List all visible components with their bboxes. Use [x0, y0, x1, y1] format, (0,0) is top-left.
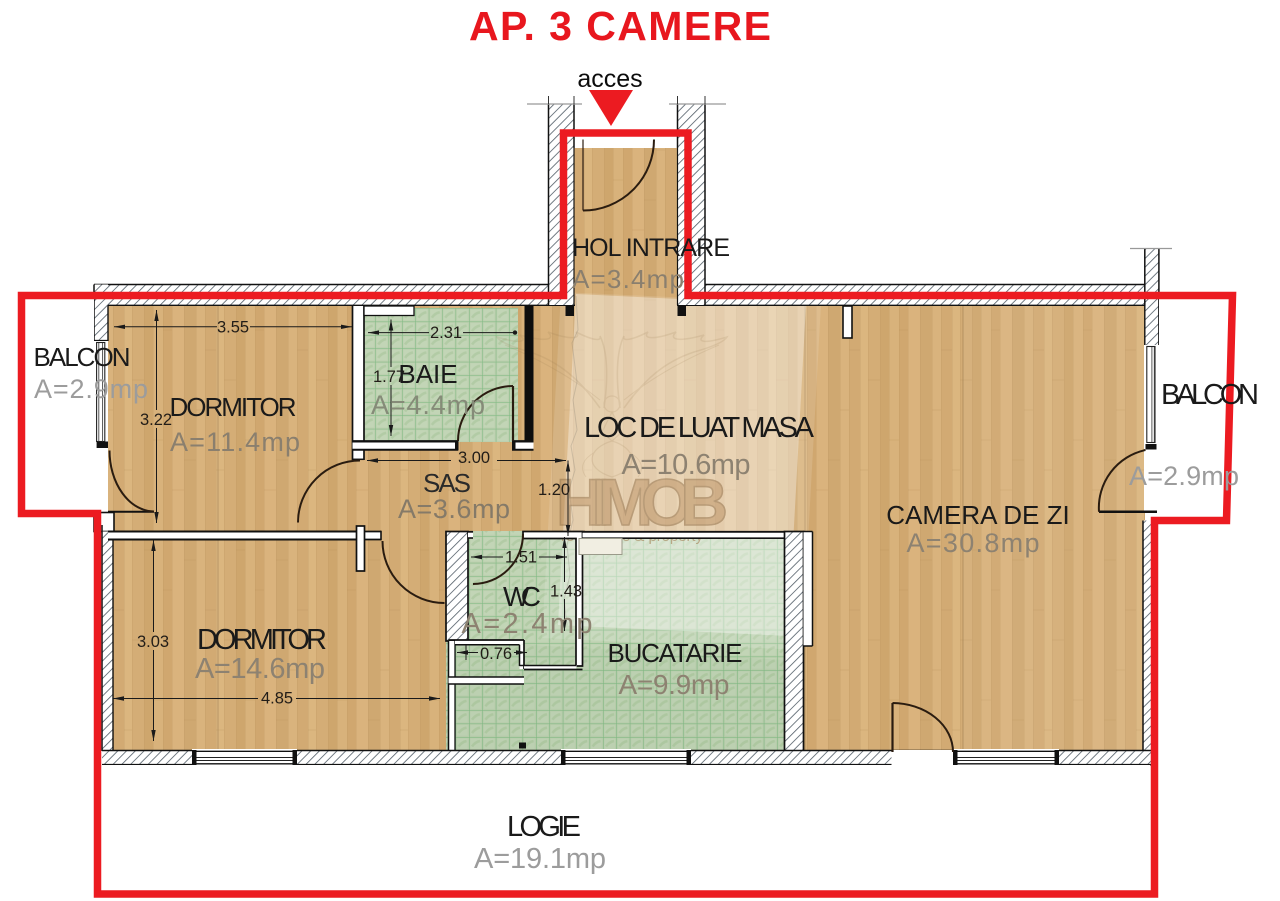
- svg-text:A=2.9mp: A=2.9mp: [1129, 461, 1239, 491]
- svg-text:A=2.9mp: A=2.9mp: [34, 374, 148, 404]
- svg-text:2.31: 2.31: [430, 324, 462, 342]
- svg-text:A=19.1mp: A=19.1mp: [474, 843, 606, 875]
- svg-text:1.43: 1.43: [550, 583, 582, 601]
- svg-text:3.03: 3.03: [137, 633, 169, 651]
- svg-text:acces: acces: [577, 65, 642, 93]
- svg-text:3.22: 3.22: [140, 411, 172, 429]
- svg-text:LOGIE: LOGIE: [507, 811, 581, 843]
- svg-text:3.00: 3.00: [458, 449, 490, 467]
- svg-text:HOL INTRARE: HOL INTRARE: [572, 234, 730, 262]
- svg-text:A=30.8mp: A=30.8mp: [907, 528, 1040, 558]
- svg-text:4.85: 4.85: [261, 690, 293, 708]
- svg-text:BAIE: BAIE: [398, 359, 457, 389]
- svg-text:A=14.6mp: A=14.6mp: [195, 653, 325, 685]
- svg-text:A=3.4mp: A=3.4mp: [572, 264, 684, 294]
- svg-text:0.76: 0.76: [480, 645, 512, 663]
- svg-text:BALCON: BALCON: [34, 342, 131, 372]
- svg-text:1.20: 1.20: [538, 481, 570, 499]
- svg-text:A=4.4mp: A=4.4mp: [371, 390, 485, 420]
- svg-text:DORMITOR: DORMITOR: [170, 392, 297, 422]
- svg-text:AP. 3 CAMERE: AP. 3 CAMERE: [469, 3, 771, 49]
- svg-text:BALCON: BALCON: [1161, 379, 1259, 411]
- svg-text:A=10.6mp: A=10.6mp: [622, 449, 751, 481]
- svg-text:1.51: 1.51: [505, 549, 537, 567]
- svg-text:LOC DE LUAT MASA: LOC DE LUAT MASA: [584, 412, 815, 444]
- svg-text:A=9.9mp: A=9.9mp: [619, 669, 730, 700]
- svg-text:DORMITOR: DORMITOR: [197, 624, 327, 656]
- svg-text:A=11.4mp: A=11.4mp: [170, 427, 300, 457]
- svg-text:BUCATARIE: BUCATARIE: [608, 638, 743, 668]
- svg-text:3.55: 3.55: [217, 319, 249, 337]
- svg-text:CAMERA DE ZI: CAMERA DE ZI: [886, 500, 1069, 530]
- svg-text:A=3.6mp: A=3.6mp: [398, 494, 510, 524]
